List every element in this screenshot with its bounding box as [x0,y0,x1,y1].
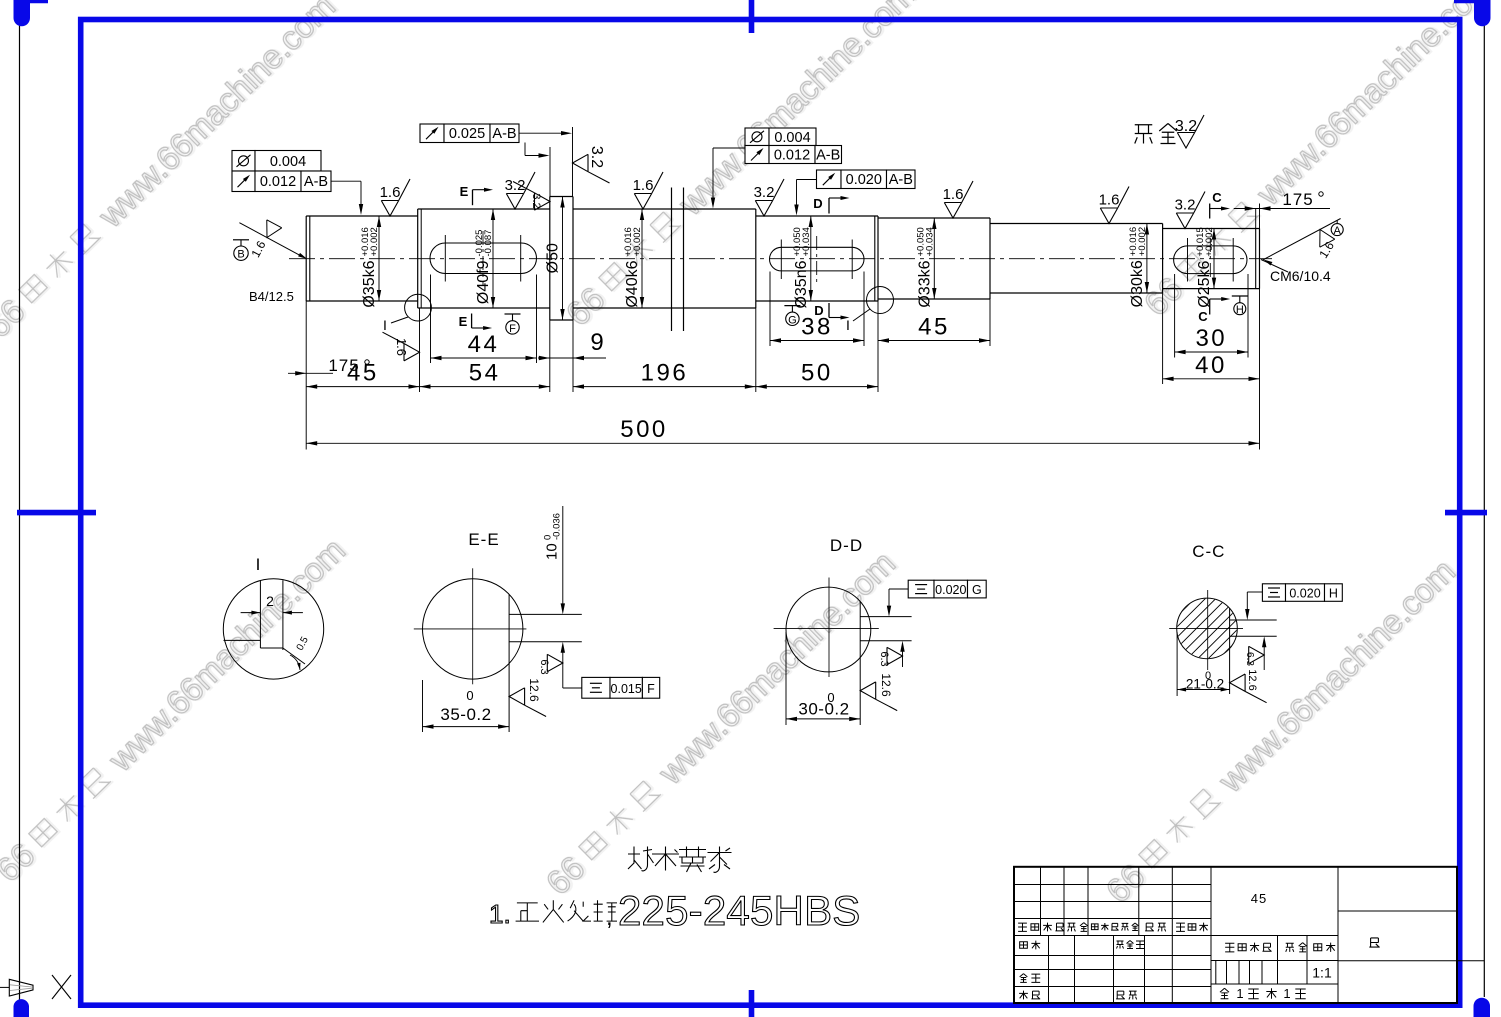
svg-text:Ø30k6: Ø30k6 [1129,260,1146,307]
svg-text:+0.002: +0.002 [632,227,643,256]
svg-text:C: C [1198,309,1208,324]
svg-text:9: 9 [590,329,603,356]
svg-text:A-B: A-B [889,172,913,188]
svg-text:G: G [972,583,982,597]
svg-text:E-E: E-E [468,530,499,549]
svg-text:45: 45 [918,314,950,341]
svg-text:G: G [788,314,797,326]
svg-text:50: 50 [801,360,833,387]
svg-text:6.3: 6.3 [538,659,550,674]
svg-text:500: 500 [620,416,668,443]
svg-text:0: 0 [466,688,473,703]
svg-text:D: D [813,196,822,211]
svg-text:21-0.2: 21-0.2 [1186,677,1224,692]
svg-text:I: I [383,317,387,333]
svg-text:H: H [1329,587,1338,601]
svg-text:1.6: 1.6 [1099,192,1120,209]
svg-text:1:1: 1:1 [1312,965,1332,981]
svg-text:3.2: 3.2 [505,177,526,194]
svg-text:3.2: 3.2 [588,146,605,168]
svg-text:40: 40 [1195,352,1227,379]
svg-text:175: 175 [328,356,359,375]
svg-text:Ø40k6: Ø40k6 [624,260,641,307]
svg-text:A-B: A-B [816,148,840,164]
svg-text:0.015: 0.015 [611,682,642,696]
svg-text:54: 54 [469,360,501,387]
svg-text:0.020: 0.020 [1289,587,1320,601]
svg-text:D: D [814,303,823,318]
svg-text:12.6: 12.6 [527,678,541,702]
svg-text:3.2: 3.2 [1175,197,1196,214]
svg-text:10: 10 [544,543,561,560]
svg-text:1.6: 1.6 [394,338,409,356]
svg-text:175: 175 [1282,190,1313,209]
svg-text:A-B: A-B [492,126,516,142]
svg-text:B4/12.5: B4/12.5 [249,289,294,304]
svg-text:6.3: 6.3 [878,651,890,666]
svg-text:F: F [509,323,516,335]
svg-text:A: A [1334,225,1342,237]
svg-text:30-0.2: 30-0.2 [798,700,849,719]
svg-text:I: I [256,555,261,574]
svg-text:44: 44 [468,331,500,358]
svg-text:1: 1 [1283,986,1290,1001]
svg-text:1: 1 [1236,986,1243,1001]
svg-text:F: F [647,682,655,696]
svg-text:-0.036: -0.036 [552,513,563,540]
svg-text:H: H [1236,304,1244,316]
svg-text:1.6: 1.6 [943,186,964,203]
svg-text:Ø33k6: Ø33k6 [916,260,933,307]
svg-text:0.004: 0.004 [270,154,306,170]
svg-text:1.: 1. [489,899,511,929]
svg-text:+0.002: +0.002 [369,227,380,256]
svg-text:225-245HBS: 225-245HBS [618,887,861,934]
svg-text:C-C: C-C [1192,542,1225,561]
svg-text:D-D: D-D [830,536,863,555]
svg-text:0.012: 0.012 [774,148,810,164]
svg-text:Ø50: Ø50 [545,243,562,273]
svg-text:E: E [460,184,469,199]
svg-text:C: C [1212,190,1222,205]
svg-text:35-0.2: 35-0.2 [440,705,491,724]
svg-text:3.2: 3.2 [530,193,542,208]
svg-text:E: E [459,314,468,329]
svg-text:Ø25k6: Ø25k6 [1196,260,1213,307]
svg-text:12.6: 12.6 [1246,669,1258,690]
svg-text:0.012: 0.012 [260,174,296,190]
svg-text:196: 196 [641,360,689,387]
svg-text:12.6: 12.6 [879,673,893,697]
svg-text:2: 2 [266,593,274,609]
svg-text:+0.002: +0.002 [1137,227,1148,256]
svg-text:,: , [606,904,613,931]
svg-text:-0.087: -0.087 [483,230,494,257]
svg-text:0.025: 0.025 [449,126,485,142]
svg-text:+0.002: +0.002 [1204,227,1215,256]
svg-text:3.2: 3.2 [754,184,775,201]
svg-text:+0.034: +0.034 [924,227,935,256]
svg-text:I: I [846,317,850,333]
svg-text:0.020: 0.020 [846,172,882,188]
svg-text:45: 45 [1251,891,1267,906]
svg-text:30: 30 [1195,325,1227,352]
svg-text:B: B [237,249,244,261]
svg-text:Ø35k6: Ø35k6 [361,260,378,307]
svg-text:CM6/10.4: CM6/10.4 [1270,268,1331,284]
svg-text:1.6: 1.6 [380,184,401,201]
svg-text:6.3: 6.3 [1244,652,1255,666]
svg-text:A-B: A-B [304,174,328,190]
svg-text:0.020: 0.020 [935,583,966,597]
svg-text:1.6: 1.6 [633,177,654,194]
svg-text:0.004: 0.004 [774,130,810,146]
svg-text:Ø40f9: Ø40f9 [475,260,492,304]
svg-text:Ø35n6: Ø35n6 [793,260,810,308]
svg-text:+0.034: +0.034 [801,227,812,256]
